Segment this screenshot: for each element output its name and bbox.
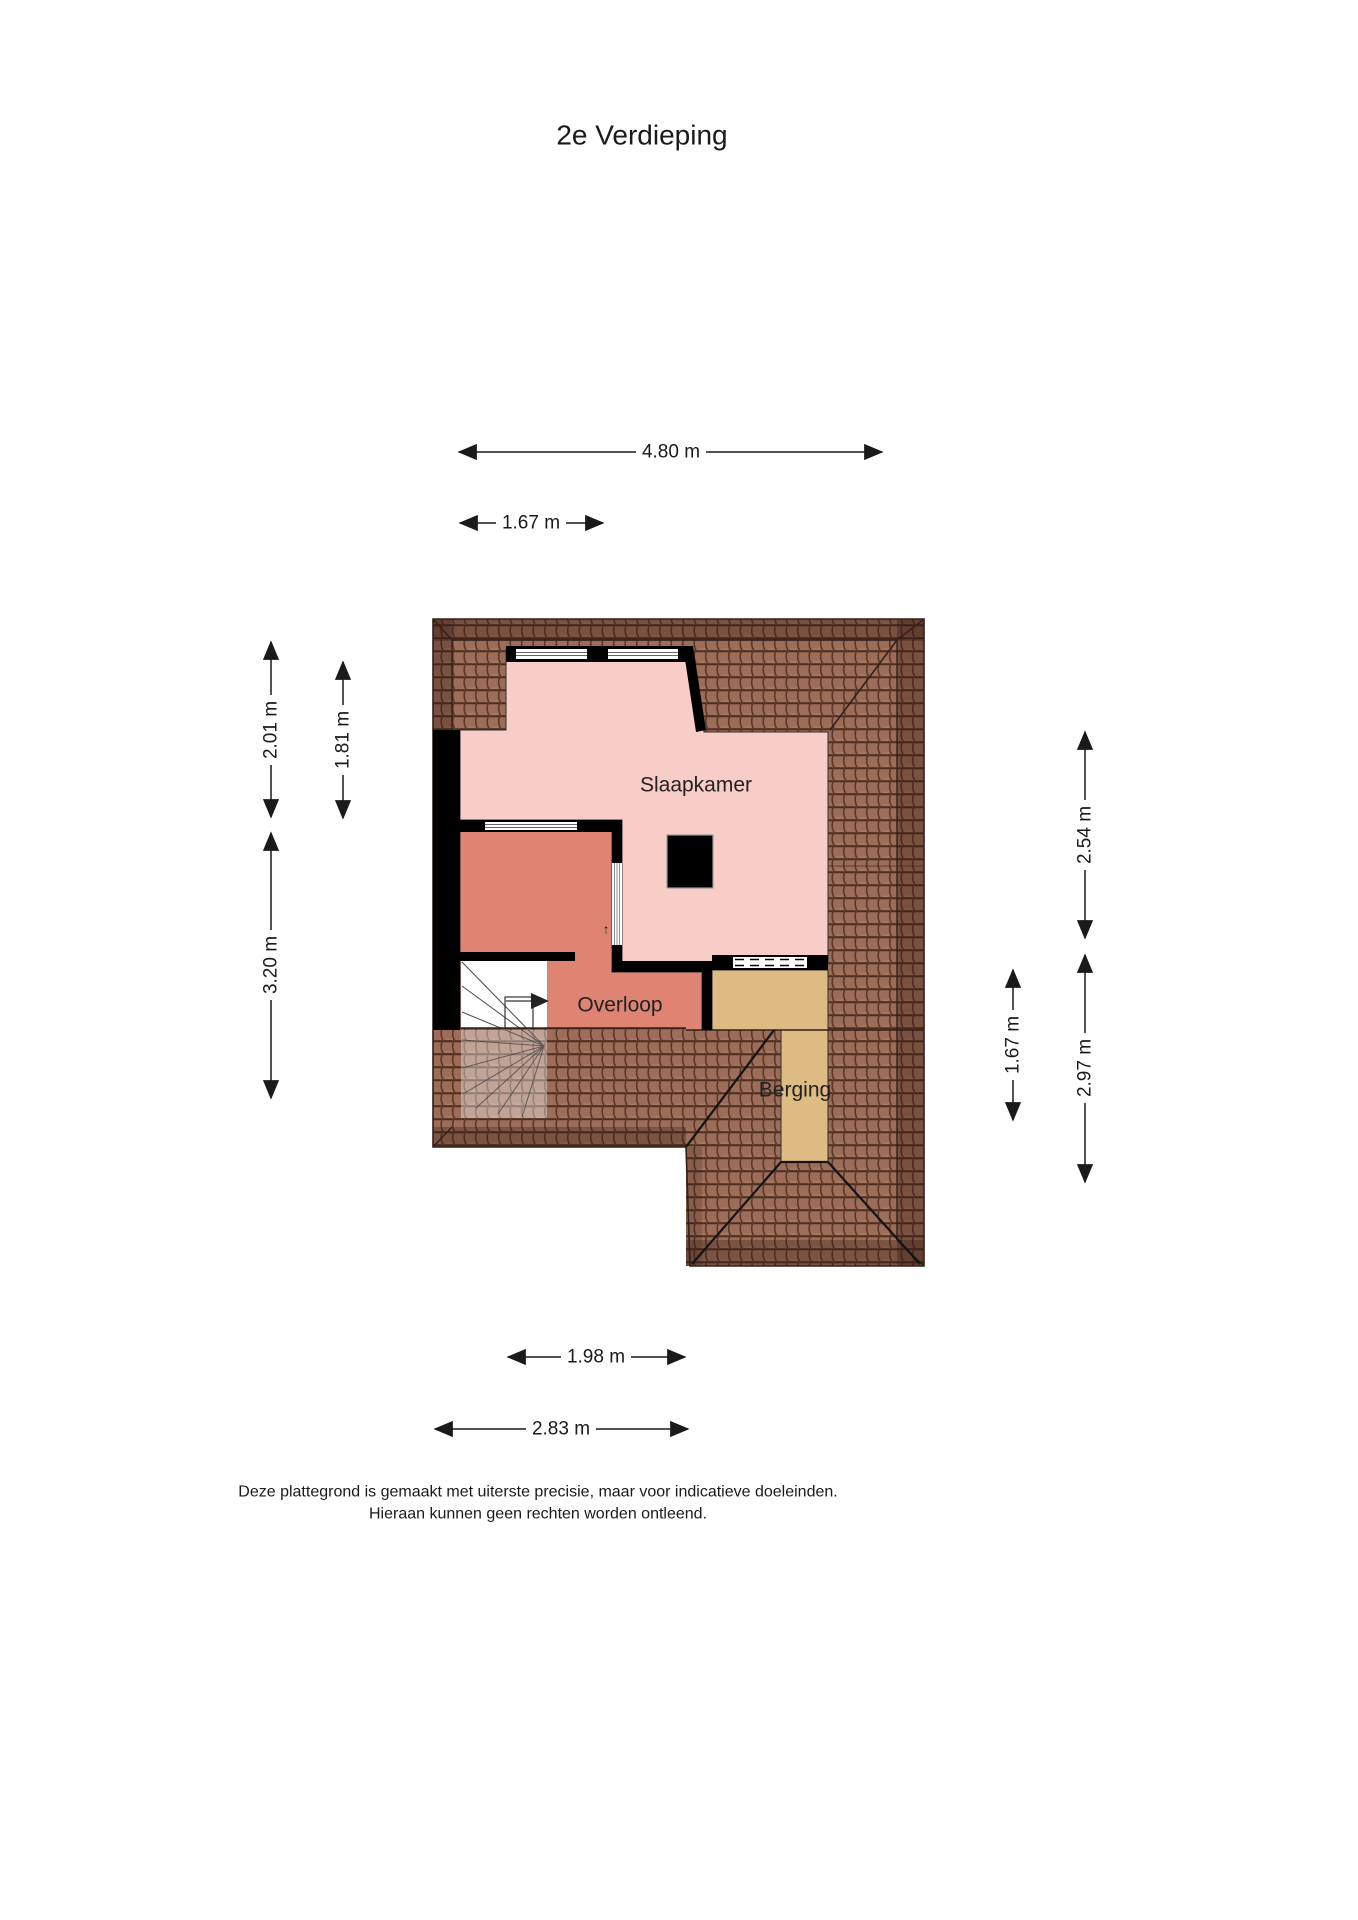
dormer-window-left xyxy=(516,649,587,659)
berging-window-wall xyxy=(712,955,828,970)
overloop-window-wall xyxy=(460,820,612,832)
slaapkamer-label: Slaapkamer xyxy=(640,774,752,797)
wall-overloop-south xyxy=(612,961,712,972)
dormer-window-right xyxy=(608,649,678,659)
dimension-top-dormer-label: 1.67 m xyxy=(502,513,560,534)
wall-berging-west xyxy=(702,972,712,1030)
dimension-top-width-label: 4.80 m xyxy=(642,442,700,463)
dimension-bottom-stairs-label: 1.98 m xyxy=(567,1347,625,1368)
page-title: 2e Verdieping xyxy=(556,120,727,151)
dimension-bottom-overloop-label: 2.83 m xyxy=(532,1419,590,1440)
overloop-label: Overloop xyxy=(577,994,662,1017)
dimension-right-berging-label: 1.67 m xyxy=(1003,1016,1024,1074)
door-direction-glyph: ↑ xyxy=(603,922,610,937)
berging-window xyxy=(733,957,807,968)
overloop-slaapkamer-wall xyxy=(612,820,622,972)
floorplan-canvas: 2e Verdieping xyxy=(0,0,1358,1920)
dimension-right-upper-label: 2.54 m xyxy=(1075,806,1096,864)
dimension-left-dormer-label: 1.81 m xyxy=(333,711,354,769)
overloop-window xyxy=(485,822,577,830)
wall-stairs-top xyxy=(460,952,575,961)
disclaimer-line1: Deze plattegrond is gemaakt met uiterste… xyxy=(238,1484,837,1501)
berging-label: Berging xyxy=(759,1079,831,1102)
dimension-left-upper-label: 2.01 m xyxy=(261,701,282,759)
dimension-left-lower-label: 3.20 m xyxy=(261,936,282,994)
dimension-right-lower-label: 2.97 m xyxy=(1075,1039,1096,1097)
floorplan-page: 2e Verdieping xyxy=(0,0,1358,1920)
wall-left xyxy=(433,730,460,1030)
disclaimer-line2: Hieraan kunnen geen rechten worden ontle… xyxy=(369,1506,707,1523)
chimney xyxy=(667,835,713,888)
